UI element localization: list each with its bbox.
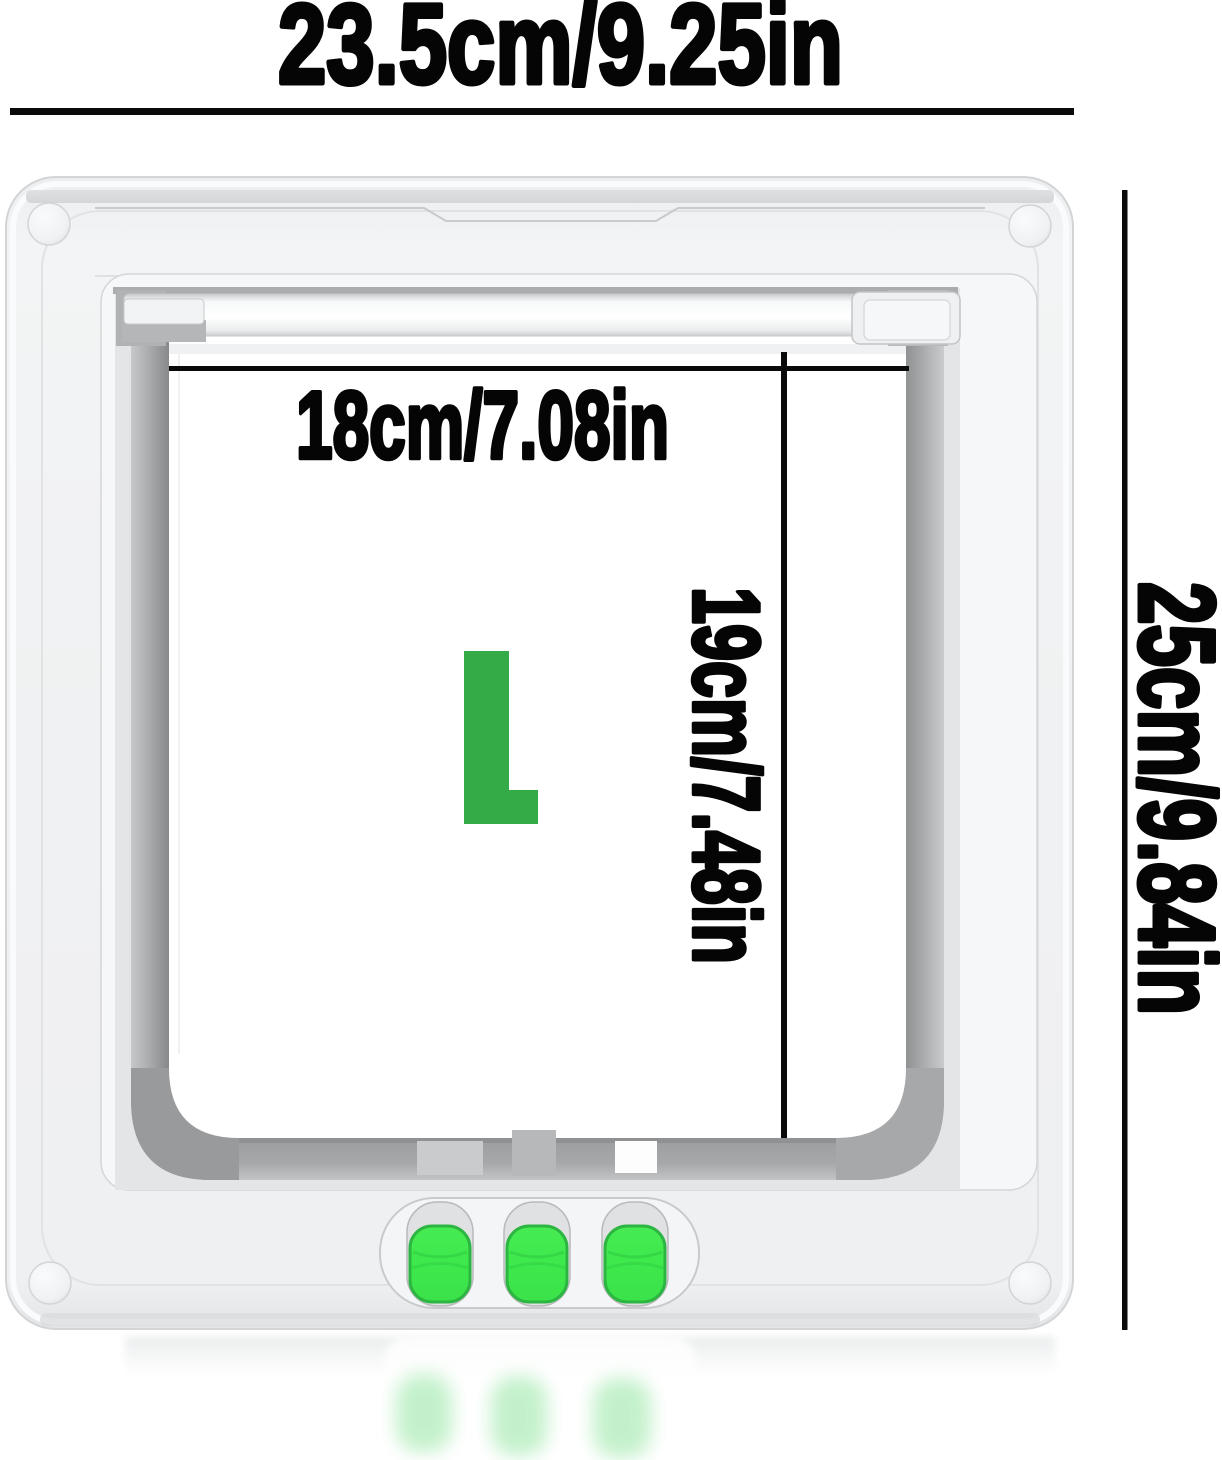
svg-text:25cm/9.84in: 25cm/9.84in [1117, 582, 1222, 1015]
svg-text:23.5cm/9.25in: 23.5cm/9.25in [278, 0, 843, 107]
svg-text:19cm/7.48in: 19cm/7.48in [674, 587, 779, 964]
svg-text:18cm/7.08in: 18cm/7.08in [296, 372, 669, 479]
